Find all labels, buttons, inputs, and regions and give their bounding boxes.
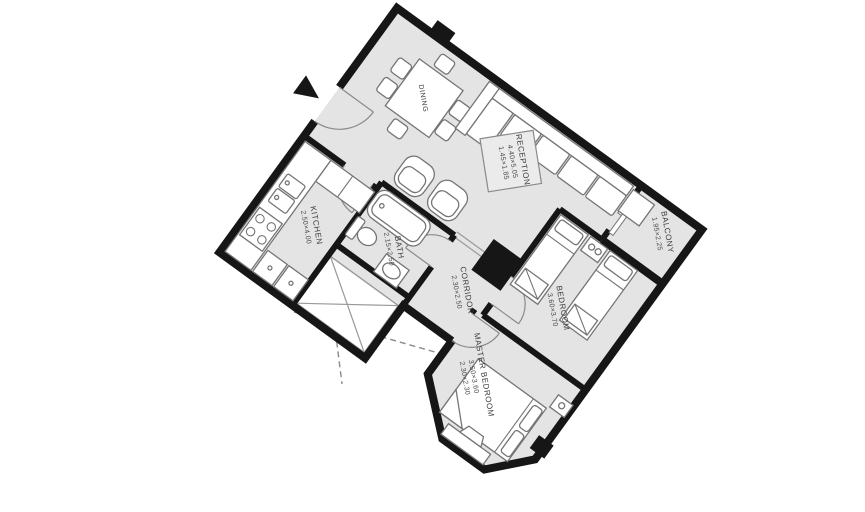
rotated-plan-group: DINING RECEPTION 4.40×5.05 1.45×1.85 KIT… <box>180 0 716 494</box>
entrance-arrow-icon <box>293 75 325 107</box>
floor-plan-page: DINING RECEPTION 4.40×5.05 1.45×1.85 KIT… <box>0 0 865 512</box>
floor-plan-drawing: DINING RECEPTION 4.40×5.05 1.45×1.85 KIT… <box>0 0 865 512</box>
